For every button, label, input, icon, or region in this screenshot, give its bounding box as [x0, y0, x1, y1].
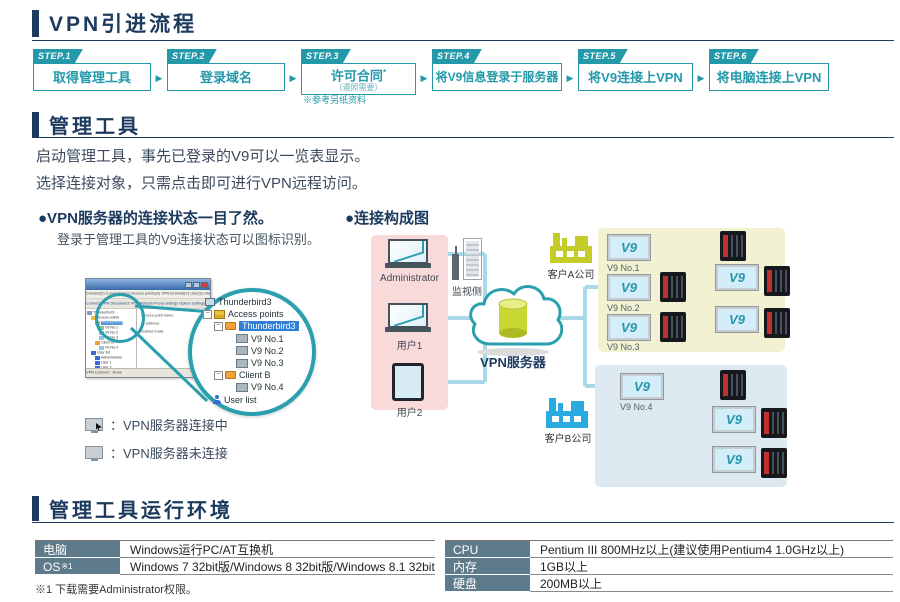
plc-icon [764, 266, 790, 296]
tree-item: Access points [203, 308, 299, 320]
monitor-disconnected-icon [85, 446, 103, 459]
step-5: STEP.5 将V9连接上VPN [578, 49, 693, 95]
v9-remote-icon: V9 [715, 264, 759, 291]
plc-icon [660, 272, 686, 302]
table-row: 电脑 Windows运行PC/AT互换机 [35, 541, 435, 558]
user2-tablet-icon [392, 363, 424, 401]
tree-item: V9 No.1 [236, 333, 299, 345]
v9-remote-icon: V9 [715, 306, 759, 333]
user-icon [212, 395, 221, 404]
user1-label: 用户1 [371, 337, 448, 352]
magnifier-source-circle [95, 293, 145, 343]
customer-b-label: 客户B公司 [537, 430, 599, 445]
step-5-badge: STEP.5 [578, 49, 628, 63]
row-header: 电脑 [35, 541, 120, 558]
section-accent-bar [32, 112, 39, 137]
v9-unit-2-icon: V9 [607, 274, 651, 301]
customer-a-factory-icon [548, 232, 594, 264]
env-table-right: CPU Pentium III 800MHz以上(建议使用Pentium4 1.… [445, 540, 893, 592]
tree-item: V9 No.2 [236, 345, 299, 357]
step-3: STEP.3 许可合同* （遵照需要） ※参考另纸资料 [301, 49, 416, 95]
collapse-icon [203, 310, 212, 319]
v9-no3-label: V9 No.3 [607, 342, 640, 352]
tree-item: V9 No.3 [236, 357, 299, 369]
collapse-icon [214, 371, 223, 380]
v9-unit-1-icon: V9 [607, 234, 651, 261]
row-header: OS※1 [35, 558, 120, 575]
v9-remote-icon: V9 [712, 406, 756, 433]
magnified-tree: Thunderbird3 Access points Thunderbird3 … [203, 296, 299, 406]
v9-no1-label: V9 No.1 [607, 263, 640, 273]
step-1-box: 取得管理工具 [33, 63, 151, 91]
row-header: 内存 [445, 558, 530, 575]
v9-no4-label: V9 No.4 [620, 402, 653, 412]
tool-screenshot: Domain(D) Connection(C) Access points(A)… [85, 268, 320, 413]
legend-disconnected: ：VPN服务器未连接 [85, 443, 228, 462]
row-value: Windows运行PC/AT互换机 [120, 541, 435, 558]
row-header: 硬盘 [445, 575, 530, 592]
step-3-badge: STEP.3 [301, 49, 351, 63]
tree-item: User list [212, 394, 299, 406]
plc-icon [720, 370, 746, 400]
step-6-label: 将电脑连接上VPN [717, 71, 822, 84]
screenshot-caption: ●VPN服务器的连接状态一目了然。 [38, 207, 273, 228]
legend-connected: ：VPN服务器连接中 [85, 415, 228, 434]
step-arrow-icon: ▶ [693, 49, 709, 95]
row-value: Pentium III 800MHz以上(建议使用Pentium4 1.0GHz… [530, 541, 893, 558]
step-arrow-icon: ▶ [285, 49, 301, 95]
step-4-box: 将V9信息登录于服务器 [432, 63, 562, 91]
section-underline [32, 522, 894, 523]
customer-a-label: 客户A公司 [541, 266, 601, 281]
step-2-label: 登录域名 [200, 71, 252, 84]
step-3-box: 许可合同* （遵照需要） [301, 63, 416, 95]
vpn-cloud-icon [463, 278, 563, 358]
step-5-box: 将V9连接上VPN [578, 63, 693, 91]
step-1-label: 取得管理工具 [53, 71, 131, 84]
step-2-badge: STEP.2 [167, 49, 217, 63]
step-5-label: 将V9连接上VPN [588, 71, 683, 84]
table-row: 硬盘 200MB以上 [445, 575, 893, 592]
monitor-icon [236, 359, 248, 368]
v9-unit-4-icon: V9 [620, 373, 664, 400]
table-row: OS※1 Windows 7 32bit版/Windows 8 32bit版/W… [35, 558, 435, 575]
page-title: VPN引进流程 [32, 8, 197, 38]
tree-item: V9 No.4 [236, 381, 299, 393]
drawer-icon [214, 310, 225, 319]
legend-disconnected-label: ：VPN服务器未连接 [110, 443, 228, 462]
section-env-title-text: 管理工具运行环境 [49, 494, 233, 523]
brochure-page: VPN引进流程 STEP.1 取得管理工具 ▶ STEP.2 登录域名 ▶ ST… [0, 0, 900, 602]
step-arrow-icon: ▶ [151, 49, 167, 95]
section-tool-title-text: 管理工具 [49, 110, 141, 139]
section-tool-title: 管理工具 [32, 110, 141, 139]
step-arrow-icon: ▶ [416, 49, 432, 95]
env-table-left: 电脑 Windows运行PC/AT互换机 OS※1 Windows 7 32bi… [35, 540, 435, 575]
row-value: 1GB以上 [530, 558, 893, 575]
step-4-label: 将V9信息登录于服务器 [436, 71, 559, 84]
step-4-badge: STEP.4 [432, 49, 482, 63]
title-underline [32, 40, 894, 41]
network-diagram: Administrator 用户1 用户2 监视侧 VPN服务器 [345, 222, 897, 500]
plc-icon [660, 312, 686, 342]
v9-remote-icon: V9 [712, 446, 756, 473]
folder-icon [225, 322, 236, 330]
connection-legend: ：VPN服务器连接中 ：VPN服务器未连接 [85, 415, 228, 462]
plc-icon [764, 308, 790, 338]
user2-label: 用户2 [371, 404, 448, 419]
step-3-label: 许可合同* [331, 66, 386, 82]
step-2-box: 登录域名 [167, 63, 285, 91]
row-value: Windows 7 32bit版/Windows 8 32bit版/Window… [120, 558, 435, 575]
step-4: STEP.4 将V9信息登录于服务器 [432, 49, 562, 95]
monitor-connected-icon [236, 334, 248, 343]
v9-unit-3-icon: V9 [607, 314, 651, 341]
table-row: 内存 1GB以上 [445, 558, 893, 575]
tree-item: Thunderbird3 [205, 296, 299, 308]
plc-icon [761, 408, 787, 438]
cursor-icon [96, 423, 102, 431]
user1-laptop-icon [385, 303, 431, 332]
step-1-badge: STEP.1 [33, 49, 83, 63]
section-accent-bar [32, 496, 39, 521]
step-6: STEP.6 将电脑连接上VPN [709, 49, 829, 95]
monitor-connected-icon [85, 418, 103, 431]
title-accent-bar [32, 10, 39, 37]
tree-item: Client B [214, 369, 299, 381]
monitor-icon [236, 346, 248, 355]
section-env-title: 管理工具运行环境 [32, 494, 233, 523]
collapse-icon [214, 322, 223, 331]
tool-description: 启动管理工具，事先已登录的V9可以一览表显示。 选择连接对象，只需点击即可进行V… [36, 143, 369, 197]
v9-no2-label: V9 No.2 [607, 303, 640, 313]
step-6-box: 将电脑连接上VPN [709, 63, 829, 91]
administrator-laptop-icon [385, 239, 431, 268]
vpn-server-label: VPN服务器 [463, 352, 563, 371]
section-underline [32, 137, 894, 138]
row-value: 200MB以上 [530, 575, 893, 592]
table-row: CPU Pentium III 800MHz以上(建议使用Pentium4 1.… [445, 541, 893, 558]
step-arrow-icon: ▶ [562, 49, 578, 95]
step-6-badge: STEP.6 [709, 49, 759, 63]
legend-connected-label: ：VPN服务器连接中 [110, 415, 228, 434]
screenshot-subcaption: 登录于管理工具的V9连接状态可以图标识别。 [57, 229, 320, 248]
step-1: STEP.1 取得管理工具 [33, 49, 151, 95]
step-2: STEP.2 登录域名 [167, 49, 285, 95]
page-title-text: VPN引进流程 [49, 8, 197, 38]
tool-description-line1: 启动管理工具，事先已登录的V9可以一览表显示。 [36, 143, 369, 170]
step-flow: STEP.1 取得管理工具 ▶ STEP.2 登录域名 ▶ STEP.3 许可合… [33, 49, 829, 95]
plc-icon [761, 448, 787, 478]
monitoring-building-icon [452, 235, 482, 280]
administrator-label: Administrator [371, 273, 448, 284]
tool-description-line2: 选择连接对象，只需点击即可进行VPN远程访问。 [36, 170, 369, 197]
computer-icon [205, 298, 215, 306]
customer-b-factory-icon [544, 397, 590, 429]
folder-icon [225, 371, 236, 379]
monitor-icon [236, 383, 248, 392]
step-3-note: ※参考另纸资料 [303, 93, 366, 106]
plc-icon [720, 231, 746, 261]
row-header: CPU [445, 541, 530, 558]
tree-item: Thunderbird3 [214, 320, 299, 332]
env-footnote: ※1 下载需要Administrator权限。 [35, 581, 197, 597]
step-3-sublabel: （遵照需要） [335, 83, 383, 92]
